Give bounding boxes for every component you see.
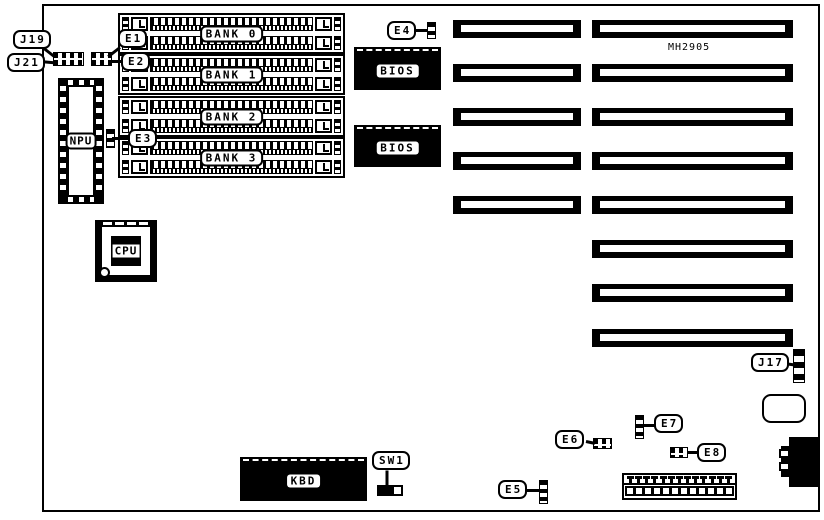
pin-row-icon [103,222,149,225]
bios-chip-top: BIOS [354,47,441,90]
simm-latch-icon [315,119,332,133]
pin-column-icon [334,160,341,174]
chip-notch-icon [357,49,438,51]
jumper-block-e5 [539,480,548,504]
power-pin-icon [709,476,716,483]
dip-switch-sw1 [377,485,403,496]
power-pin-icon [676,476,683,483]
memory-bank-0: BANK 0 [118,13,345,54]
power-socket-icon [717,488,723,494]
power-connector [622,473,737,500]
jumper-block-e4 [427,22,436,39]
power-socket-icon [699,488,705,494]
power-pin-icon [717,476,724,483]
power-pin-icon [725,476,732,483]
simm-latch-icon [131,77,148,91]
npu-socket: NPU [58,78,104,204]
simm-latch-icon [131,100,148,114]
connector-tab-icon [779,449,790,458]
pin-row-icon [68,197,94,202]
npu-label: NPU [66,133,97,150]
power-pin-icon [635,476,642,483]
pin-column-icon [122,100,129,114]
expansion-slot-long [592,152,793,170]
simm-latch-icon [315,17,332,31]
simm-latch-icon [315,36,332,50]
bios-chip-bottom: BIOS [354,125,441,167]
pin-column-icon [334,17,341,31]
power-pin-icon [668,476,675,483]
power-socket-icon [681,488,687,494]
jumper-block-j19-j21 [53,52,84,66]
keyboard-din-connector [789,437,820,487]
bank-0-label: BANK 0 [200,26,264,43]
expansion-slot-long [592,108,793,126]
pin-column-icon [334,119,341,133]
expansion-slot-short [453,20,581,38]
callout-tail [386,471,389,489]
pin-row-icon [68,80,94,85]
simm-latch-icon [315,100,332,114]
pin-column-icon [334,58,341,72]
callout-e6: E6 [555,430,584,449]
callout-j21: J21 [7,53,45,72]
power-socket-icon [654,488,660,494]
power-socket-icon [663,488,669,494]
callout-e8: E8 [697,443,726,462]
pin-column-icon [96,86,102,196]
bank-2-label: BANK 2 [200,109,264,126]
power-pin-icon [684,476,691,483]
power-pin-icon [692,476,699,483]
expansion-slot-long [592,329,793,347]
jumper-block-j17 [793,349,805,383]
power-socket-icon [726,488,732,494]
callout-e4: E4 [387,21,416,40]
power-socket-icon [645,488,651,494]
power-pin-icon [660,476,667,483]
simm-latch-icon [131,160,148,174]
power-pin-icon [627,476,634,483]
power-socket-icon [708,488,714,494]
power-pin-icon [651,476,658,483]
simm-latch-icon [315,58,332,72]
expansion-slot-short [453,152,581,170]
expansion-slot-long [592,64,793,82]
power-pin-icon [700,476,707,483]
battery-outline [762,394,806,423]
callout-sw1: SW1 [372,451,410,470]
power-pin-row [624,475,735,485]
chip-notch-icon [243,459,364,461]
pin-column-icon [334,100,341,114]
memory-bank-1: BANK 1 [118,54,345,95]
board-model-label: MH2905 [668,42,710,53]
callout-j17: J17 [751,353,789,372]
expansion-slot-short [453,108,581,126]
bios-top-label: BIOS [376,64,419,77]
expansion-slot-long [592,284,793,302]
pin-column-icon [122,119,129,133]
simm-latch-icon [315,77,332,91]
bios-bottom-label: BIOS [376,142,419,155]
callout-e1: E1 [118,29,147,48]
jumper-block-e7 [635,415,644,439]
simm-latch-icon [315,160,332,174]
pin1-marker-icon [99,267,110,278]
callout-tail [527,489,540,492]
power-socket-icon [690,488,696,494]
cpu-label: CPU [113,245,140,258]
socket-well [69,87,93,139]
expansion-slot-short [453,64,581,82]
expansion-slot-long [592,196,793,214]
callout-j19: J19 [13,30,51,49]
keyboard-bios-chip: KBD [240,457,367,501]
power-socket-icon [636,488,642,494]
callout-e5: E5 [498,480,527,499]
bank-3-label: BANK 3 [200,150,264,167]
power-socket-icon [672,488,678,494]
power-pin-icon [643,476,650,483]
cpu-socket: CPU [95,220,157,282]
power-socket-icon [627,488,633,494]
expansion-slot-long [592,20,793,38]
jumper-block-e6 [593,438,612,449]
expansion-slot-long [592,240,793,258]
pin-column-icon [122,77,129,91]
motherboard-diagram: BANK 0 BANK 1 [0,0,824,520]
callout-e7: E7 [654,414,683,433]
expansion-slot-short [453,196,581,214]
connector-tab-icon [779,462,790,471]
kbd-label: KBD [287,475,321,488]
jumper-block-e8 [670,447,688,458]
pin-column-icon [122,160,129,174]
callout-e3: E3 [128,129,157,148]
bank-1-label: BANK 1 [200,67,264,84]
pin-column-icon [334,77,341,91]
chip-notch-icon [357,127,438,129]
callout-tail [112,137,129,140]
callout-e2: E2 [121,52,150,71]
pin-column-icon [334,141,341,155]
power-socket-row [625,486,734,496]
socket-well [69,147,93,195]
pin-column-icon [334,36,341,50]
simm-latch-icon [315,141,332,155]
